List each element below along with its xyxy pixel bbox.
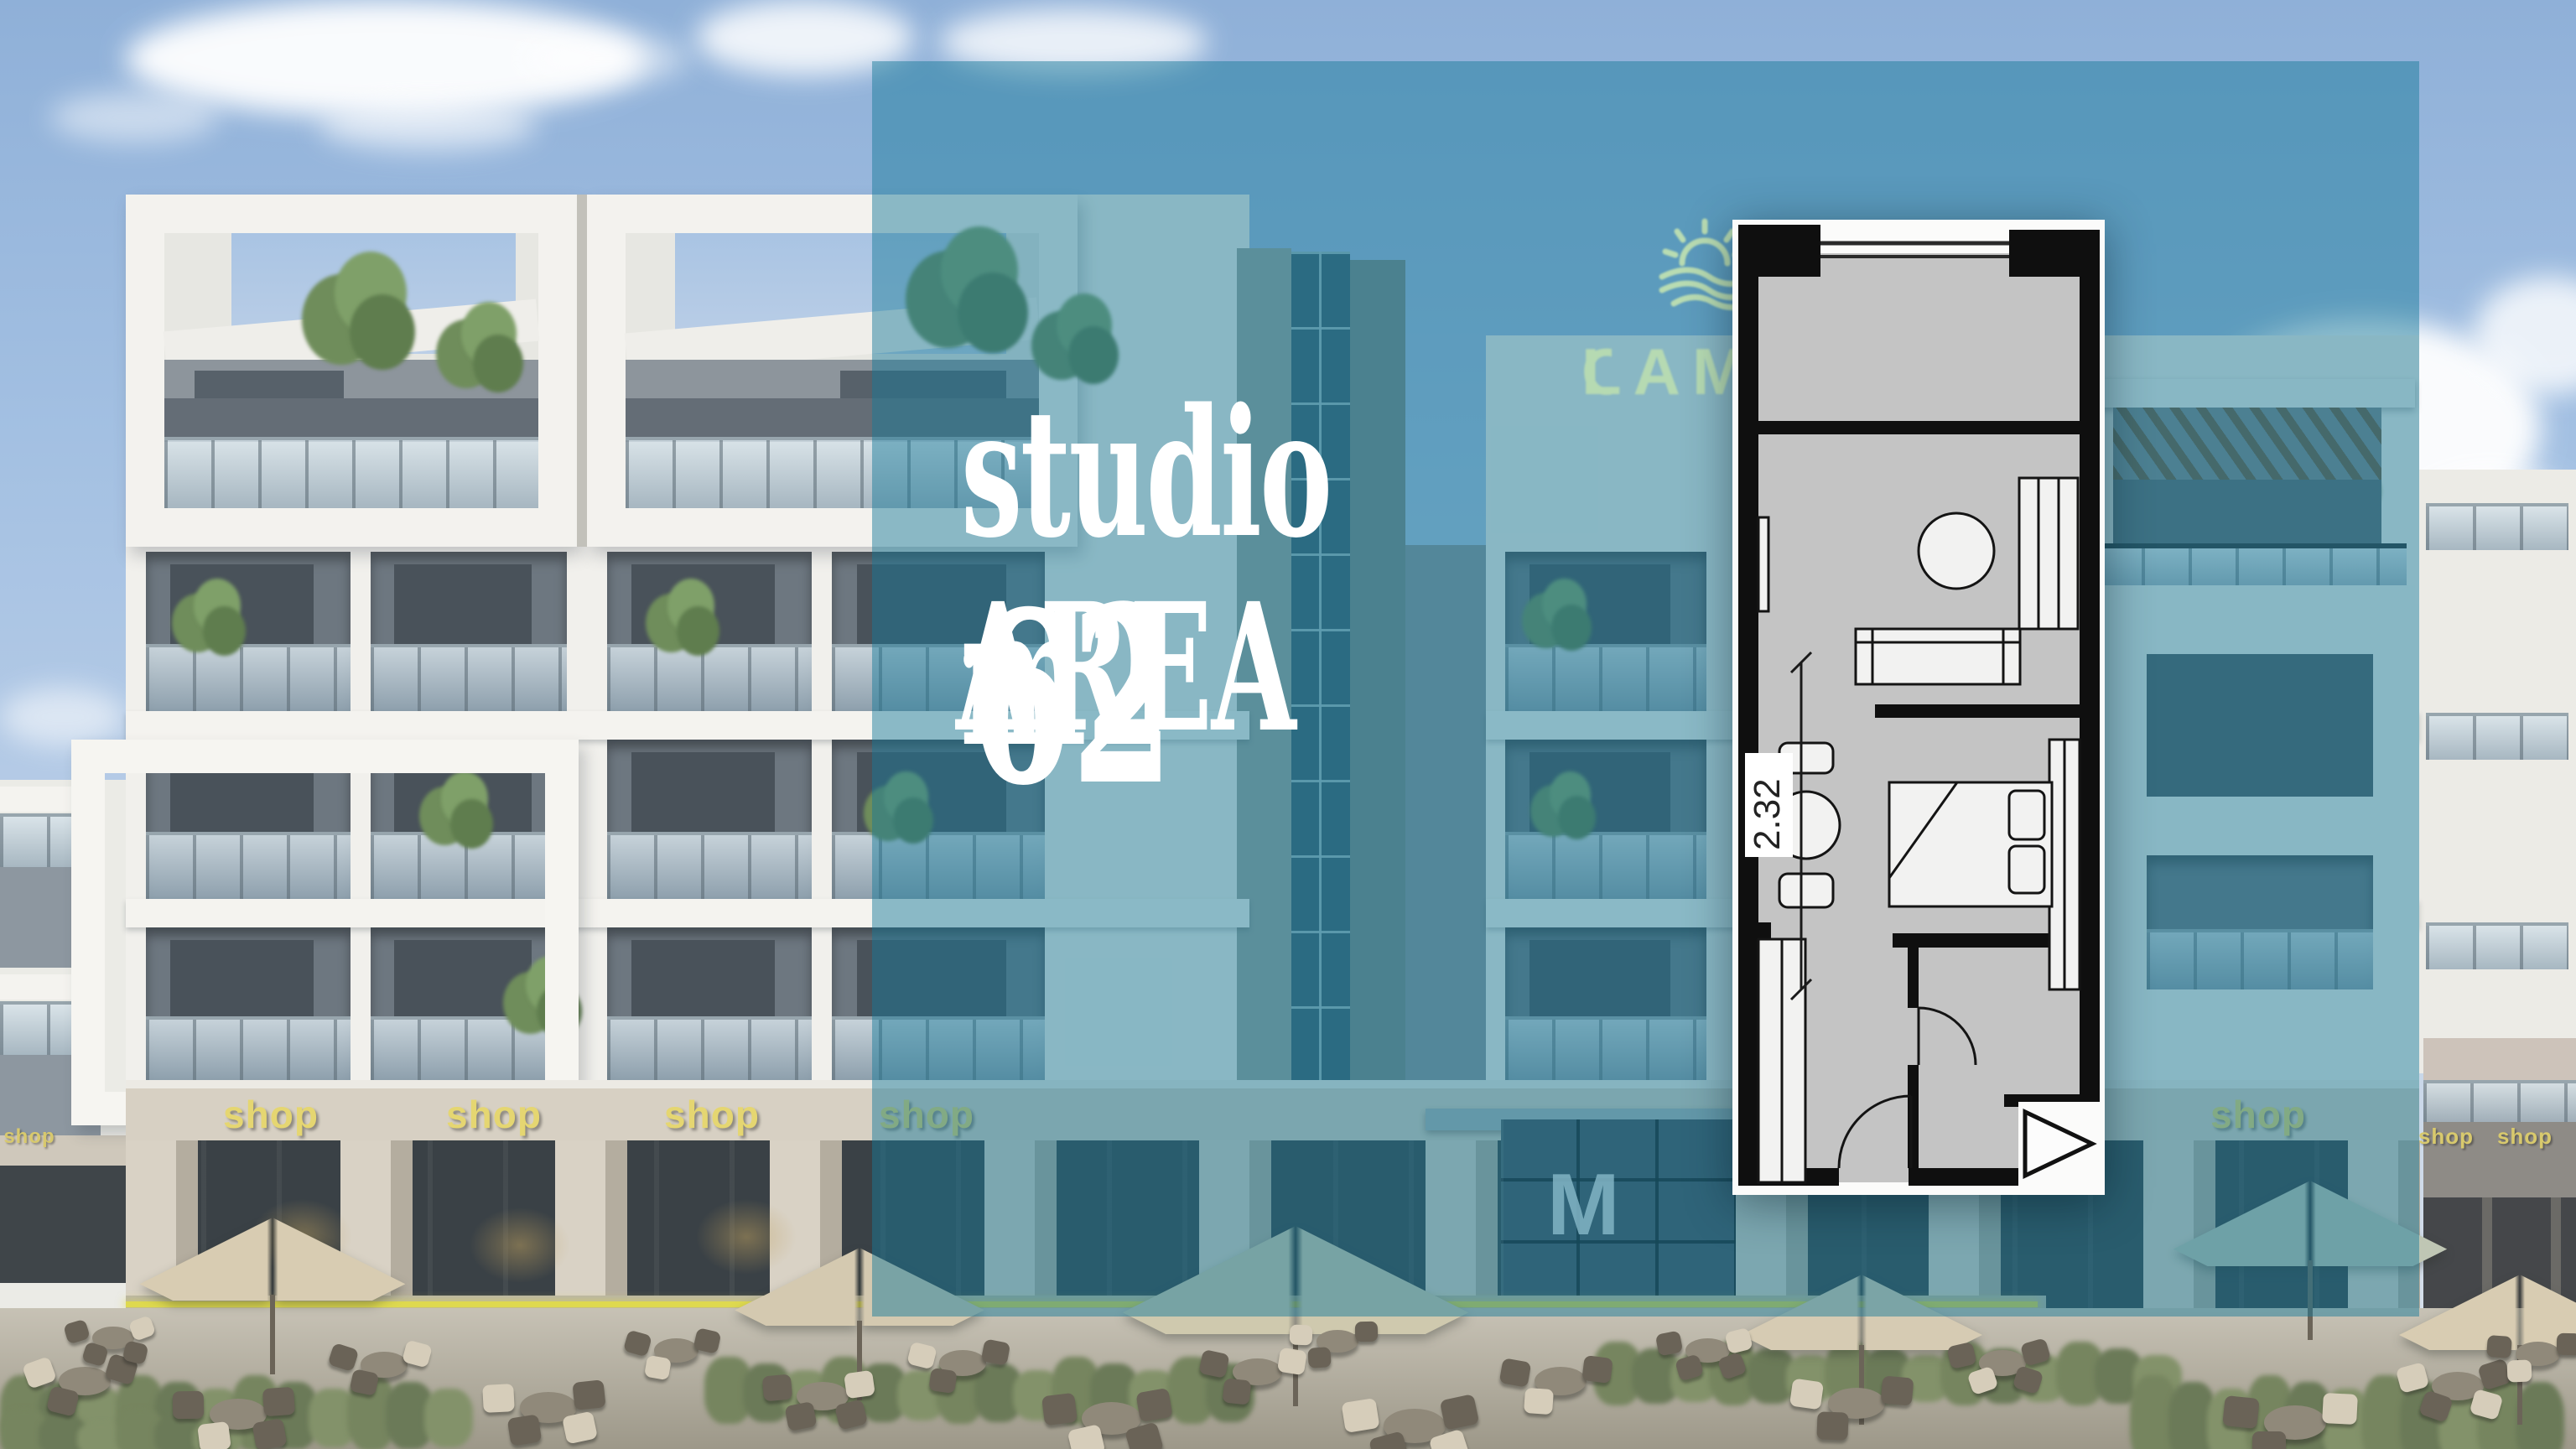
cafe-chair <box>350 1369 380 1397</box>
cafe-chair <box>262 1387 296 1417</box>
cafe-chair <box>1198 1349 1230 1379</box>
headline-area-unit: m2 <box>960 580 1170 773</box>
cafe-chair <box>1135 1388 1172 1422</box>
cafe-chair <box>1041 1393 1078 1426</box>
umbrella <box>2394 1275 2576 1350</box>
cafe-chair <box>506 1414 542 1446</box>
cafe-chair <box>2322 1393 2358 1425</box>
cafe-chair <box>2020 1337 2051 1366</box>
cafe-chair <box>623 1330 652 1357</box>
cafe-chair <box>1946 1342 1976 1369</box>
cafe-chair <box>173 1391 205 1420</box>
cafe-chair <box>1341 1398 1379 1433</box>
cafe-chair <box>928 1368 957 1394</box>
plan-dimension-label: 2.32 <box>1747 778 1788 850</box>
cafe-chair <box>2252 1431 2287 1449</box>
floor-plan: 2.32 <box>1732 220 2105 1195</box>
umbrella <box>134 1218 411 1301</box>
cafe-chair <box>2222 1395 2259 1429</box>
umbrella-canopy <box>134 1218 411 1301</box>
cafe-chair <box>2486 1335 2512 1358</box>
cafe-chair <box>844 1370 875 1399</box>
plan-terrace-floor <box>1758 253 2080 421</box>
headline-line1: studio <box>961 386 1331 562</box>
cafe-chair <box>784 1401 817 1431</box>
cafe-chair <box>562 1411 598 1445</box>
cafe-chair <box>1581 1355 1613 1384</box>
cafe-chair <box>1655 1331 1683 1357</box>
cafe-chair <box>252 1418 288 1449</box>
cafe-chair <box>22 1356 57 1389</box>
cafe-chair <box>1277 1347 1307 1374</box>
cafe-chair <box>1308 1347 1332 1368</box>
umbrella-canopy <box>2394 1275 2576 1350</box>
cafe-chair <box>762 1374 792 1402</box>
cafe-chair <box>644 1355 672 1380</box>
cafe-chair <box>482 1384 515 1413</box>
cafe-chair <box>1290 1324 1313 1345</box>
cafe-chair <box>2506 1360 2532 1382</box>
cafe-chair <box>2396 1362 2430 1394</box>
cafe-chair <box>2557 1333 2576 1355</box>
cafe-chair <box>1439 1394 1478 1431</box>
cafe-chair <box>2470 1389 2504 1420</box>
cafe-chair <box>906 1341 937 1369</box>
cafe-chair <box>2012 1365 2044 1394</box>
cafe-chair <box>1355 1322 1379 1342</box>
cafe-chair <box>1222 1378 1251 1405</box>
cafe-chair <box>328 1343 359 1372</box>
cafe-chair <box>834 1399 868 1430</box>
cafe-chair <box>63 1318 91 1344</box>
cafe-chair <box>1880 1375 1914 1405</box>
cafe-chair <box>1789 1379 1825 1410</box>
cafe-chair <box>572 1379 606 1410</box>
cafe-chair <box>1524 1388 1554 1415</box>
cafe-chair <box>1816 1411 1849 1440</box>
cafe-chair <box>197 1420 231 1449</box>
cafe-chair <box>1499 1358 1532 1387</box>
umbrella-pole <box>270 1295 275 1374</box>
marketing-visual: M shop shop shop shop shop shop shop sho… <box>0 0 2576 1449</box>
